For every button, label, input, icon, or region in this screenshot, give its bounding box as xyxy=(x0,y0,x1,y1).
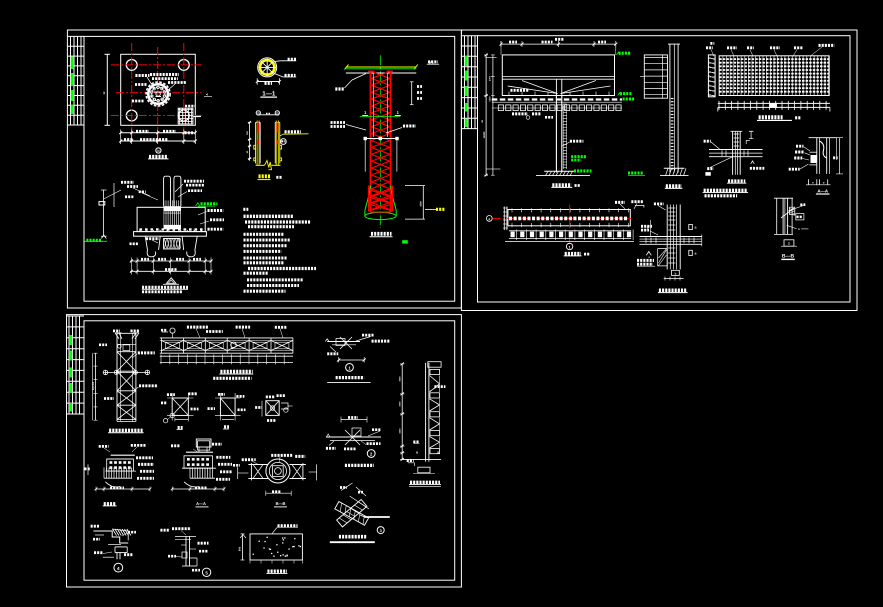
svg-text:4: 4 xyxy=(117,566,120,571)
svg-text:1200: 1200 xyxy=(489,96,492,102)
svg-text:B: B xyxy=(695,253,697,256)
svg-text:n: n xyxy=(812,181,814,185)
svg-text:o: o xyxy=(823,181,825,185)
svg-text:12000: 12000 xyxy=(483,131,486,138)
svg-text:1: 1 xyxy=(569,245,571,249)
svg-text:3000: 3000 xyxy=(489,75,492,81)
svg-text:B—B: B—B xyxy=(276,501,286,506)
svg-text:3000: 3000 xyxy=(399,376,402,382)
svg-text:A—A: A—A xyxy=(817,188,829,193)
svg-text:600: 600 xyxy=(239,546,242,551)
svg-text:A: A xyxy=(205,93,209,95)
svg-text:A—A: A—A xyxy=(196,501,206,506)
svg-text:2000: 2000 xyxy=(399,401,402,407)
svg-text:3: 3 xyxy=(380,529,382,533)
svg-text:B: B xyxy=(437,450,439,454)
svg-text:3220: 3220 xyxy=(399,428,402,434)
svg-text:B: B xyxy=(416,450,418,454)
svg-text:1500: 1500 xyxy=(420,201,423,207)
svg-text:b: b xyxy=(675,272,677,276)
svg-text:B: B xyxy=(695,227,697,230)
svg-text:1—1: 1—1 xyxy=(262,90,276,97)
svg-text:6@1200: 6@1200 xyxy=(92,381,95,390)
